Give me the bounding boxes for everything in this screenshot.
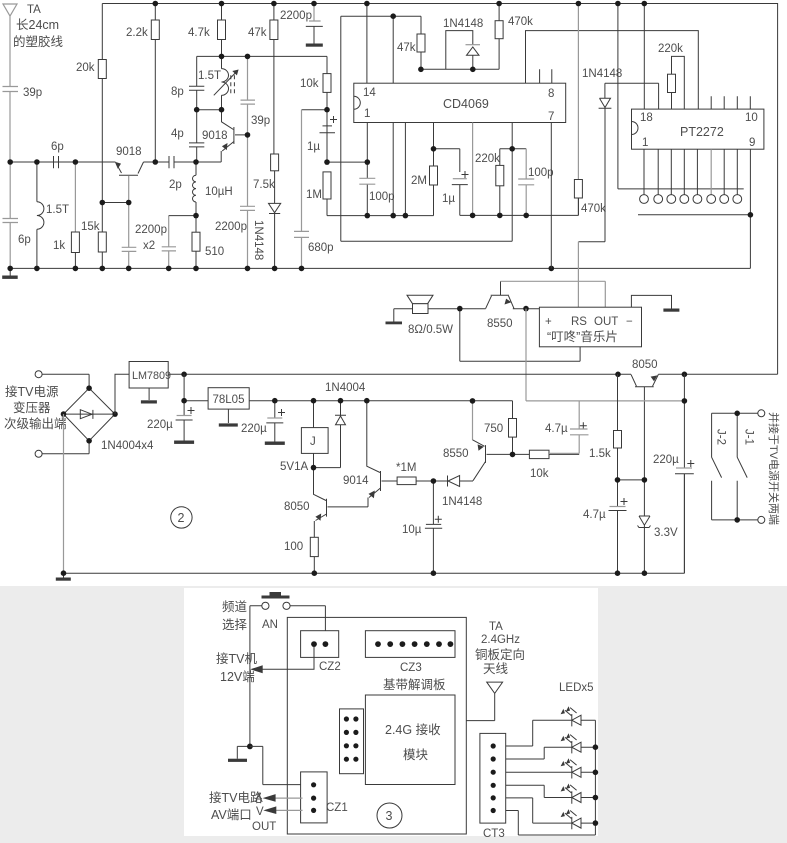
svg-text:8: 8 <box>548 88 554 100</box>
svg-text:PT2272: PT2272 <box>680 125 724 139</box>
svg-text:3: 3 <box>386 809 393 823</box>
svg-text:1.5k: 1.5k <box>589 448 611 460</box>
svg-text:5V1A: 5V1A <box>280 461 308 473</box>
svg-text:TA: TA <box>27 4 41 16</box>
svg-text:9018: 9018 <box>116 146 142 158</box>
svg-text:A: A <box>255 793 263 805</box>
svg-text:15k: 15k <box>81 221 100 233</box>
svg-text:2M: 2M <box>411 175 427 187</box>
svg-text:AN: AN <box>262 619 278 631</box>
svg-text:8550: 8550 <box>487 318 513 330</box>
svg-text:39p: 39p <box>23 87 42 99</box>
svg-text:4p: 4p <box>171 128 184 140</box>
svg-text:2: 2 <box>178 511 185 525</box>
svg-text:100p: 100p <box>369 191 395 203</box>
svg-text:1N4148: 1N4148 <box>252 220 264 260</box>
svg-text:的塑胶线: 的塑胶线 <box>13 34 64 49</box>
svg-text:LM7809: LM7809 <box>132 370 171 382</box>
svg-text:220µ: 220µ <box>147 419 173 431</box>
svg-text:基带解调板: 基带解调板 <box>383 678 446 692</box>
svg-text:接TV机: 接TV机 <box>216 651 257 666</box>
svg-text:680p: 680p <box>308 242 334 254</box>
svg-text:4.7µ: 4.7µ <box>545 423 568 435</box>
svg-text:4.7k: 4.7k <box>188 27 210 39</box>
svg-text:10k: 10k <box>300 78 319 90</box>
svg-text:4.7µ: 4.7µ <box>583 509 606 521</box>
svg-text:100p: 100p <box>528 167 554 179</box>
svg-text:CZ2: CZ2 <box>319 661 341 673</box>
svg-text:14: 14 <box>363 87 376 99</box>
svg-text:J-2: J-2 <box>715 429 727 445</box>
svg-text:510: 510 <box>205 246 224 258</box>
svg-text:−: − <box>626 316 633 328</box>
svg-text:78L05: 78L05 <box>213 394 245 406</box>
svg-text:RS: RS <box>571 316 587 328</box>
svg-text:“叮咚”音乐片: “叮咚”音乐片 <box>547 329 618 344</box>
svg-text:6p: 6p <box>51 141 64 153</box>
svg-text:1N4148: 1N4148 <box>442 496 482 508</box>
svg-text:CZ3: CZ3 <box>400 662 422 674</box>
svg-text:12V端: 12V端 <box>220 670 255 684</box>
svg-text:8050: 8050 <box>632 359 658 371</box>
svg-text:2.2k: 2.2k <box>126 27 148 39</box>
svg-text:10µH: 10µH <box>205 186 233 198</box>
svg-text:CZ1: CZ1 <box>326 802 348 814</box>
svg-text:模块: 模块 <box>403 748 429 762</box>
svg-text:750: 750 <box>484 423 503 435</box>
svg-text:20k: 20k <box>76 62 95 74</box>
svg-text:变压器: 变压器 <box>13 400 51 415</box>
svg-text:2.4G 接收: 2.4G 接收 <box>385 722 441 737</box>
svg-text:1µ: 1µ <box>442 193 455 205</box>
svg-text:10k: 10k <box>530 468 549 480</box>
svg-text:OUT: OUT <box>252 821 276 833</box>
svg-text:8550: 8550 <box>443 448 469 460</box>
svg-text:220µ: 220µ <box>241 423 267 435</box>
svg-text:铜板定向: 铜板定向 <box>475 647 525 662</box>
svg-text:OUT: OUT <box>594 316 618 328</box>
svg-text:7: 7 <box>548 111 554 123</box>
svg-text:2.4GHz: 2.4GHz <box>481 634 520 646</box>
svg-text:220k: 220k <box>475 153 500 165</box>
svg-text:1N4148: 1N4148 <box>443 18 483 30</box>
svg-text:频道: 频道 <box>222 600 248 614</box>
svg-text:3.3V: 3.3V <box>654 527 678 539</box>
svg-text:9014: 9014 <box>343 475 369 487</box>
svg-text:天线: 天线 <box>483 662 509 676</box>
svg-text:6p: 6p <box>18 234 31 246</box>
svg-text:8p: 8p <box>171 86 184 98</box>
svg-text:选择: 选择 <box>222 618 248 632</box>
svg-text:39p: 39p <box>251 115 270 127</box>
svg-text:470k: 470k <box>581 203 606 215</box>
svg-text:次级输出端: 次级输出端 <box>4 416 67 431</box>
svg-text:*1M: *1M <box>396 462 416 474</box>
svg-text:8050: 8050 <box>284 501 310 513</box>
svg-text:1N4148: 1N4148 <box>582 68 622 80</box>
svg-text:TA: TA <box>489 621 503 633</box>
svg-text:2200p: 2200p <box>215 221 247 233</box>
svg-text:LEDx5: LEDx5 <box>559 682 594 694</box>
svg-text:1.5T: 1.5T <box>46 204 69 216</box>
svg-text:x2: x2 <box>143 240 155 252</box>
svg-text:1: 1 <box>642 137 648 149</box>
svg-text:1N4004x4: 1N4004x4 <box>101 440 154 452</box>
svg-text:CD4069: CD4069 <box>443 97 489 111</box>
svg-text:8Ω/0.5W: 8Ω/0.5W <box>408 324 453 336</box>
svg-text:47k: 47k <box>397 42 416 54</box>
svg-text:9: 9 <box>749 137 755 149</box>
svg-text:1µ: 1µ <box>307 141 320 153</box>
svg-text:1.5T: 1.5T <box>198 70 221 82</box>
svg-text:长24cm: 长24cm <box>16 18 59 32</box>
svg-text:J-1: J-1 <box>743 429 755 445</box>
svg-text:2200p: 2200p <box>280 10 312 22</box>
svg-text:1k: 1k <box>53 240 65 252</box>
svg-text:2200p: 2200p <box>135 224 167 236</box>
svg-text:接TV电源: 接TV电源 <box>5 384 59 399</box>
svg-text:100: 100 <box>284 541 303 553</box>
svg-text:10: 10 <box>745 112 758 124</box>
svg-text:9018: 9018 <box>202 130 228 142</box>
svg-text:47k: 47k <box>248 27 267 39</box>
svg-text:并接于TV电源开关两端: 并接于TV电源开关两端 <box>767 412 781 525</box>
svg-text:J: J <box>310 436 316 448</box>
svg-text:18: 18 <box>640 112 653 124</box>
svg-text:+: + <box>545 316 552 328</box>
svg-text:220k: 220k <box>658 43 683 55</box>
svg-text:220µ: 220µ <box>653 454 679 466</box>
svg-text:2p: 2p <box>169 179 182 191</box>
svg-text:10µ: 10µ <box>402 524 422 536</box>
svg-text:1M: 1M <box>306 189 322 201</box>
svg-text:7.5k: 7.5k <box>253 179 275 191</box>
svg-text:V: V <box>256 806 264 818</box>
svg-text:470k: 470k <box>508 16 533 28</box>
svg-text:CT3: CT3 <box>483 828 505 840</box>
svg-text:AV端口: AV端口 <box>211 808 252 822</box>
svg-text:1N4004: 1N4004 <box>325 382 366 394</box>
svg-text:1: 1 <box>364 108 370 120</box>
